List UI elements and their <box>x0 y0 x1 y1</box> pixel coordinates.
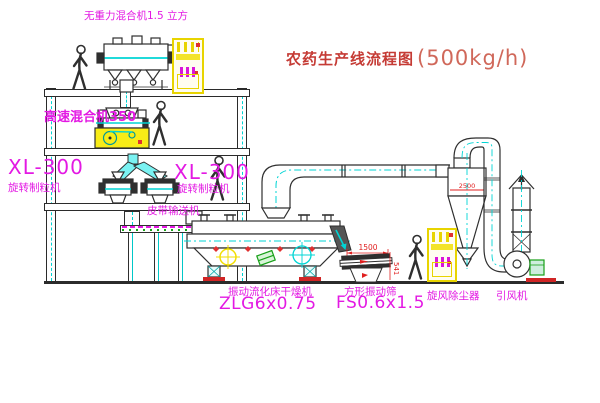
conveyor-leg <box>154 233 159 281</box>
cabinet-indicator <box>196 43 200 47</box>
cabinet-indicator <box>449 233 453 237</box>
label-fan: 引风机 <box>496 291 528 302</box>
label-granulator-left: 旋转制粒机 <box>8 183 61 194</box>
fluid-bed-dryer <box>186 205 354 285</box>
control-cabinet-ground <box>427 228 457 282</box>
conveyor-leg <box>178 233 183 281</box>
induced-draft-fan <box>504 251 556 282</box>
rotary-granulator-left <box>98 172 138 204</box>
cabinet-strip <box>176 54 200 60</box>
conveyor-leg <box>128 233 133 281</box>
process-flow-diagram: 农药生产线流程图 (500kg/h) <box>0 0 600 403</box>
granulate-drop-duct <box>124 211 140 226</box>
control-cabinet-top <box>172 38 204 94</box>
label-sieve-model: FS0.6x1.5 <box>336 295 425 312</box>
title-chinese: 农药生产线流程图 <box>286 48 414 69</box>
diagram-title: 农药生产线流程图 (500kg/h) <box>286 48 528 69</box>
cabinet-door <box>177 74 199 89</box>
dryer-supports <box>203 266 321 281</box>
svg-text:541: 541 <box>392 262 400 275</box>
label-dryer-model: ZLG6x0.75 <box>219 296 317 313</box>
cyclone-inlet <box>436 165 449 177</box>
fan-base <box>526 278 556 282</box>
person-figure <box>146 100 176 148</box>
cabinet-strip <box>431 244 453 250</box>
label-belt-conveyor: 皮带输送机 <box>147 206 200 217</box>
no-gravity-mixer <box>96 34 180 92</box>
svg-text:1500: 1500 <box>358 243 377 252</box>
label-granulator-mid: 旋转制粒机 <box>177 184 230 195</box>
dimension-541: 541 <box>390 252 400 280</box>
sieve-deck <box>340 254 393 270</box>
label-xl300-mid: XL-300 <box>174 162 250 182</box>
label-no-gravity-mixer: 无重力混合机1.5 立方 <box>84 11 188 22</box>
mixer-discharge <box>120 80 133 92</box>
svg-text:2500: 2500 <box>459 182 476 190</box>
square-vibrating-sieve: 1500 541 <box>330 224 404 284</box>
person-figure <box>66 44 96 92</box>
label-cyclone: 旋风除尘器 <box>427 291 480 302</box>
title-capacity: (500kg/h) <box>417 49 528 69</box>
label-high-speed-mixer: 高速混合机350 <box>44 111 136 124</box>
label-xl300-left: XL-300 <box>8 157 84 177</box>
dryer-top-ports <box>198 215 334 221</box>
cabinet-door <box>432 262 452 277</box>
